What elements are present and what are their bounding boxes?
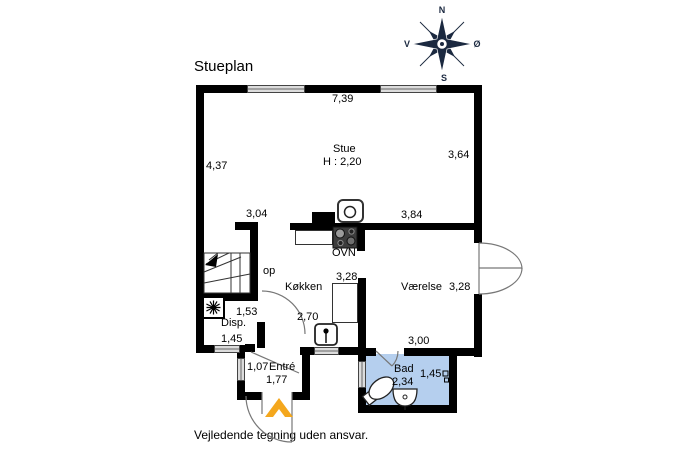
- wall-segment: [474, 85, 482, 243]
- page-title: Stueplan: [194, 58, 253, 75]
- dimension-label: 3,04: [246, 208, 267, 220]
- wall-segment: [290, 223, 482, 230]
- dimension-label: 3,00: [408, 335, 429, 347]
- room-height-label: H : 2,20: [323, 156, 362, 168]
- wall-segment: [196, 85, 204, 353]
- dimension-label: 1,07: [247, 361, 268, 373]
- wall-segment: [404, 348, 482, 356]
- kitchen-sink: [337, 199, 364, 223]
- compass-north-label: N: [439, 5, 446, 15]
- wall-segment: [358, 405, 457, 413]
- wall-segment: [196, 85, 482, 93]
- compass-west-label: V: [404, 39, 410, 49]
- dimension-label: 3,84: [401, 209, 422, 221]
- wall-segment: [357, 230, 365, 251]
- wall-segment: [302, 350, 310, 400]
- room-label-kokken: Køkken: [285, 281, 322, 293]
- dimension-label: 1,77: [266, 374, 287, 386]
- floor-plan-canvas: Stueplan Vejledende tegning uden ansvar.: [0, 0, 687, 457]
- wall-segment: [245, 344, 255, 352]
- entrance-chevron-icon: [265, 398, 293, 417]
- room-label-disp: Disp.: [221, 317, 246, 329]
- wall-segment: [358, 278, 366, 413]
- compass-south-label: S: [441, 73, 447, 83]
- wall-segment: [312, 212, 335, 223]
- window: [358, 361, 366, 388]
- room-label-vaerelse: Værelse: [401, 281, 442, 293]
- wall-segment: [196, 293, 258, 301]
- wall-segment: [237, 392, 262, 400]
- dimension-label: 2,34: [392, 376, 413, 388]
- dimension-label: 4,37: [206, 160, 227, 172]
- compass-rose-icon: N Ø S V: [404, 5, 481, 83]
- room-label-bad: Bad: [394, 363, 414, 375]
- fixture-icon: [315, 324, 337, 345]
- disclaimer-text: Vejledende tegning uden ansvar.: [194, 428, 368, 442]
- window: [237, 358, 245, 381]
- dimension-label: 1,45: [221, 333, 242, 345]
- wall-segment: [235, 222, 258, 230]
- wall-segment: [449, 348, 457, 413]
- compass-east-label: Ø: [473, 39, 480, 49]
- dimension-label: 1,45: [420, 368, 441, 380]
- wall-segment: [366, 348, 376, 356]
- window: [314, 347, 339, 355]
- wall-segment: [257, 322, 265, 348]
- stairs-icon: [204, 253, 250, 293]
- kitchen-cabinet: [332, 283, 358, 323]
- room-label-entre: Entré: [269, 361, 295, 373]
- stairs-up-label: op: [263, 265, 275, 277]
- dimension-label: 2,70: [297, 311, 318, 323]
- window: [214, 345, 240, 353]
- dimension-label: 3,28: [449, 281, 470, 293]
- room-label-stue: Stue: [333, 143, 356, 155]
- dimension-label: 7,39: [332, 93, 353, 105]
- dimension-label: 3,64: [448, 149, 469, 161]
- wall-segment: [250, 222, 258, 293]
- window: [380, 85, 437, 93]
- stove-icon: [333, 227, 357, 248]
- oven-label: OVN: [332, 247, 356, 259]
- kitchen-counter: [295, 230, 333, 245]
- dimension-label: 3,28: [336, 271, 357, 283]
- window: [247, 85, 305, 93]
